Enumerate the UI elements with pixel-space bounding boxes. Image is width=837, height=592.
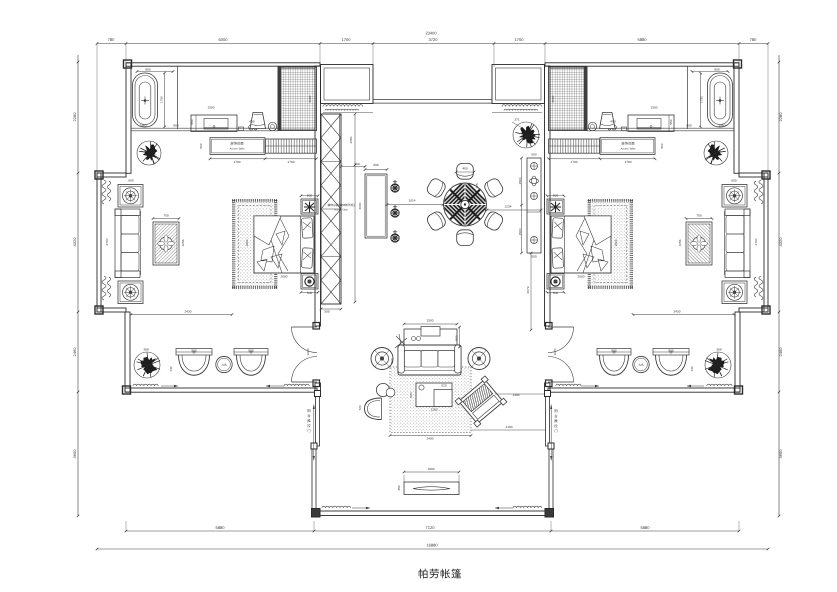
svg-text:3720: 3720 [429,37,439,42]
svg-text:2000: 2000 [281,274,288,278]
svg-text:2460: 2460 [778,347,783,357]
svg-text:1060: 1060 [719,123,726,127]
svg-text:2400: 2400 [427,436,434,440]
svg-text:1750: 1750 [700,96,704,103]
svg-text:371: 371 [514,117,519,121]
svg-text:990: 990 [373,163,378,167]
svg-text:475: 475 [475,183,479,188]
svg-text:800: 800 [173,123,178,127]
svg-text:1750: 1750 [159,96,163,103]
svg-text:5880: 5880 [641,525,651,530]
svg-text:500: 500 [531,254,536,258]
svg-text:600: 600 [409,392,413,397]
svg-text:550: 550 [669,119,673,124]
svg-text:1700: 1700 [342,37,352,42]
svg-text:700: 700 [163,213,168,217]
svg-text:800: 800 [714,67,719,71]
svg-text:910: 910 [668,348,673,352]
svg-text:550: 550 [190,119,194,124]
svg-text:16880: 16880 [426,542,438,547]
svg-text:1056: 1056 [678,239,682,246]
svg-text:Accent Table: Accent Table [334,208,348,211]
svg-text:1700: 1700 [515,37,525,42]
svg-text:装饰台面: 装饰台面 [230,140,244,145]
svg-text:800: 800 [686,123,691,127]
svg-text:350: 350 [397,485,401,490]
svg-text:600: 600 [128,178,133,182]
svg-text:368: 368 [143,347,148,351]
svg-text:2700: 2700 [754,238,758,245]
svg-text:2280: 2280 [72,112,77,122]
svg-text:1056: 1056 [181,239,185,246]
svg-text:500: 500 [553,291,558,295]
svg-text:130: 130 [169,366,173,371]
svg-text:Accent Table: Accent Table [230,146,245,150]
svg-text:500: 500 [455,335,459,340]
svg-text:2460: 2460 [72,347,77,357]
svg-text:6000: 6000 [219,37,229,42]
svg-text:2700: 2700 [105,238,109,245]
svg-text:520: 520 [441,383,446,387]
svg-text:5880: 5880 [216,525,226,530]
svg-text:2080: 2080 [308,95,312,102]
svg-text:368: 368 [716,347,721,351]
svg-text:2000: 2000 [578,274,585,278]
svg-text:2190: 2190 [506,425,513,429]
svg-text:900: 900 [390,358,394,363]
svg-text:725: 725 [221,363,226,367]
svg-text:1060: 1060 [140,123,147,127]
svg-text:1500: 1500 [427,318,434,322]
svg-text:910: 910 [191,348,196,352]
svg-text:1500: 1500 [518,228,522,235]
svg-text:2080: 2080 [551,95,555,102]
svg-text:500: 500 [307,193,312,197]
svg-text:1700: 1700 [571,160,578,164]
svg-text:780: 780 [108,37,115,42]
svg-text:600: 600 [731,178,736,182]
svg-text:1014: 1014 [409,198,416,202]
svg-text:1700: 1700 [234,160,241,164]
svg-text:910: 910 [611,348,616,352]
svg-text:500: 500 [307,291,312,295]
svg-text:1500: 1500 [518,177,522,184]
svg-text:2280: 2280 [778,112,783,122]
svg-text:Accent Table: Accent Table [621,146,636,150]
svg-text:500: 500 [199,143,203,148]
svg-text:1600: 1600 [306,348,310,355]
svg-text:1700: 1700 [625,160,632,164]
svg-text:910: 910 [248,348,253,352]
svg-text:3600: 3600 [778,449,783,459]
svg-text:1800: 1800 [245,239,249,246]
svg-text:5880: 5880 [638,37,648,42]
svg-text:1800: 1800 [614,239,618,246]
svg-text:3600: 3600 [72,449,77,459]
svg-text:1700: 1700 [288,160,295,164]
svg-text:1500: 1500 [208,105,215,109]
svg-text:装饰台面(装饰陈列柜): 装饰台面(装饰陈列柜) [327,203,354,207]
svg-text:2280: 2280 [349,136,353,143]
svg-text:1234: 1234 [505,204,512,208]
svg-text:500: 500 [553,193,558,197]
svg-text:2079: 2079 [526,286,530,293]
svg-text:130: 130 [690,366,694,371]
svg-text:500: 500 [324,309,329,313]
svg-text:1390: 1390 [513,393,520,397]
svg-text:2430: 2430 [185,309,192,313]
svg-text:2430: 2430 [674,309,681,313]
svg-text:1600: 1600 [553,348,557,355]
svg-text:450: 450 [249,119,254,123]
svg-text:780: 780 [750,37,757,42]
svg-text:900: 900 [354,162,359,166]
svg-text:725: 725 [638,363,643,367]
svg-text:700: 700 [696,213,701,217]
svg-text:1260: 1260 [431,407,438,411]
svg-text:1800: 1800 [428,467,435,471]
svg-text:400: 400 [462,166,467,170]
svg-text:4320: 4320 [72,237,77,247]
svg-text:500: 500 [660,143,664,148]
svg-text:2000: 2000 [358,202,362,209]
svg-text:23400: 23400 [425,30,437,35]
svg-text:720: 720 [358,405,362,410]
svg-text:450: 450 [610,119,615,123]
svg-text:装饰台面: 装饰台面 [621,140,635,145]
svg-text:7120: 7120 [426,525,436,530]
svg-text:1500: 1500 [651,105,658,109]
svg-text:800: 800 [145,67,150,71]
svg-text:4320: 4320 [778,237,783,247]
svg-text:500: 500 [531,152,536,156]
svg-text:帕劳帐篷: 帕劳帐篷 [418,567,462,580]
